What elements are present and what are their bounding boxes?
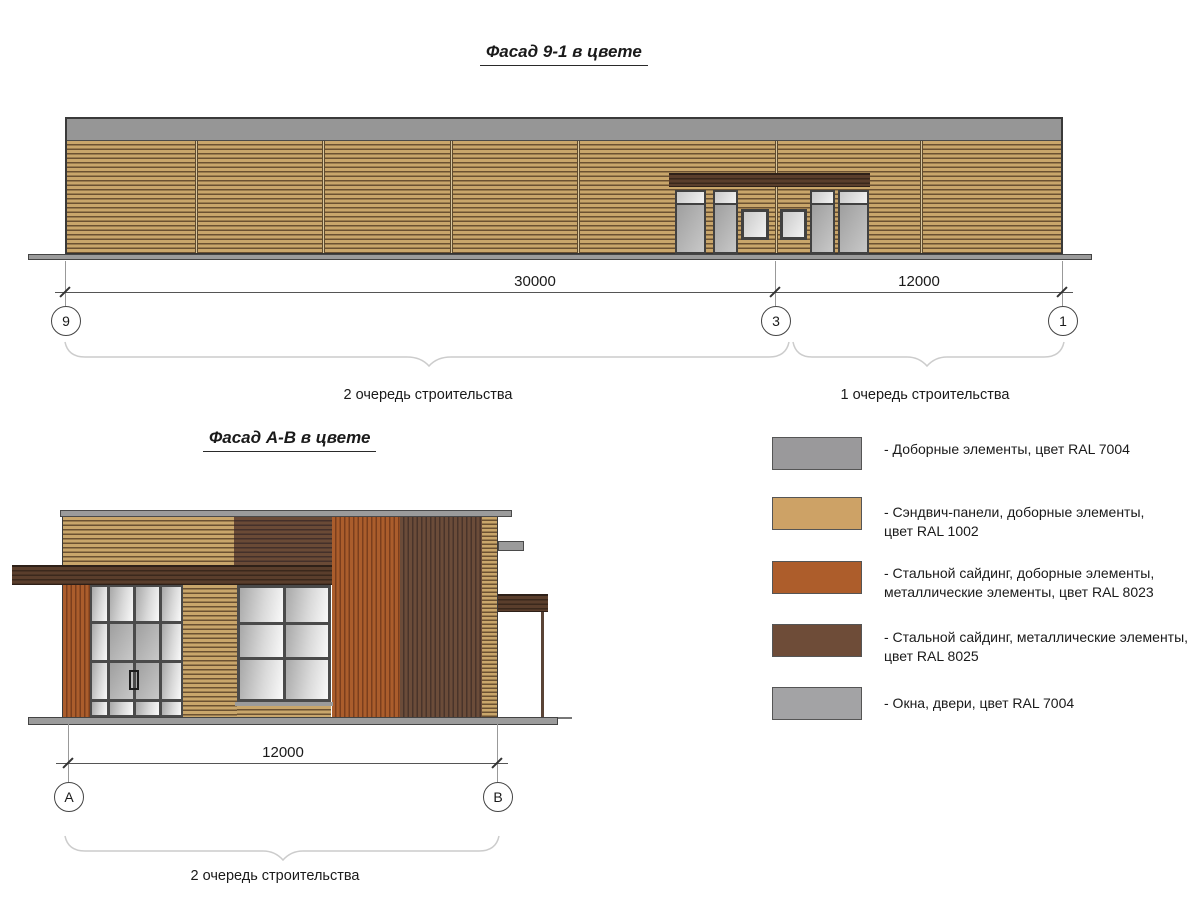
extension-line-axis-9 (65, 261, 66, 306)
window-pane (92, 702, 107, 715)
ground-strip (28, 717, 558, 725)
panel-joint (195, 141, 198, 253)
tan-siding-band (62, 517, 234, 565)
sidelight-glass (812, 205, 833, 252)
legend-label-windows: - Окна, двери, цвет RAL 7004 (884, 694, 1200, 713)
phase-label-1: 1 очередь строительства (815, 387, 1035, 403)
parapet-cap (60, 510, 512, 517)
entrance-canopy (669, 173, 870, 187)
dimension-line (55, 292, 1073, 293)
drawing-sheet: Фасад 9-1 в цвете (0, 0, 1200, 900)
window-pane (136, 702, 159, 715)
sidelight-transom (812, 192, 833, 203)
porch-canopy (498, 594, 548, 612)
legend-label-ral1002: - Сэндвич-панели, доборные элементы, цве… (884, 503, 1200, 540)
phase-brace (0, 828, 600, 872)
curtain-wall (90, 585, 183, 717)
door-transom (677, 192, 704, 203)
ground-strip (28, 254, 1092, 260)
facade-a-b-title: Фасад А-В в цвете (203, 428, 376, 452)
entrance-door-right (838, 190, 869, 254)
wood-siding-wall (67, 141, 1061, 253)
window-pane (240, 660, 283, 699)
window-glass (744, 212, 766, 237)
window-pane (286, 625, 329, 657)
entrance-door-left (675, 190, 706, 254)
parapet-band (67, 119, 1061, 141)
axis-circle-9: 9 (51, 306, 81, 336)
phase-label: 2 очередь строительства (165, 868, 385, 884)
axis-circle-b: В (483, 782, 513, 812)
window-pane (136, 587, 159, 621)
siding-under-window (237, 706, 331, 717)
window-pane (162, 624, 181, 660)
dark-brown-vertical-siding (400, 517, 482, 717)
door-pane (110, 624, 133, 660)
roof-beam (498, 541, 524, 551)
dimension-line (56, 763, 508, 764)
door-handle (129, 670, 139, 690)
window-pane (240, 588, 283, 622)
facade-9-1-title: Фасад 9-1 в цвете (480, 42, 648, 66)
dimension-value-12000: 12000 (243, 744, 323, 761)
window-pane (286, 660, 329, 699)
legend-swatch-ral8023 (772, 561, 862, 594)
phase-braces (0, 336, 1200, 380)
axis-circle-1: 1 (1048, 306, 1078, 336)
entrance-window-right (780, 209, 807, 240)
legend-label-ral7004: - Доборные элементы, цвет RAL 7004 (884, 440, 1200, 459)
door-pane (136, 624, 159, 660)
porch-post (541, 612, 544, 717)
window-pane (162, 702, 181, 715)
facade-a-b-drawing (12, 510, 572, 732)
window-pane (110, 587, 133, 621)
dimension-value-12000: 12000 (879, 273, 959, 290)
door-leaf (677, 205, 704, 252)
panel-joint (450, 141, 453, 253)
legend-label-ral8025: - Стальной сайдинг, металлические элемен… (884, 628, 1200, 665)
extension-line-axis-1 (1062, 261, 1063, 306)
panel-joint (920, 141, 923, 253)
entrance-sidelight-right (810, 190, 835, 254)
sidelight-glass (715, 205, 736, 252)
tan-corner-strip (482, 517, 498, 717)
door-leaf (840, 205, 867, 252)
dimension-value-30000: 30000 (495, 273, 575, 290)
legend-swatch-ral1002 (772, 497, 862, 530)
phase-label-2: 2 очередь строительства (318, 387, 538, 403)
extension-line-axis-b (497, 723, 498, 782)
panel-joint (577, 141, 580, 253)
extension-line-axis-3 (775, 261, 776, 306)
large-window (237, 585, 331, 702)
window-pane (110, 702, 133, 715)
tan-siding-pier (183, 585, 237, 717)
extension-line-axis-a (68, 723, 69, 782)
window-pane (162, 587, 181, 621)
legend-swatch-ral8025 (772, 624, 862, 657)
orange-siding-section (332, 517, 400, 717)
window-glass (783, 212, 804, 237)
orange-corner-column (62, 585, 90, 717)
window-pane (240, 625, 283, 657)
panel-joint (775, 141, 778, 253)
window-pane (162, 663, 181, 699)
window-pane (92, 624, 107, 660)
legend-label-ral8023: - Стальной сайдинг, доборные элементы, м… (884, 564, 1200, 601)
door-pane (136, 663, 159, 699)
window-pane (92, 663, 107, 699)
legend-swatch-ral7004 (772, 437, 862, 470)
entrance-sidelight-left (713, 190, 738, 254)
sidelight-transom (715, 192, 736, 203)
ground-line-extension (558, 717, 572, 719)
door-transom (840, 192, 867, 203)
axis-circle-3: 3 (761, 306, 791, 336)
axis-circle-a: А (54, 782, 84, 812)
facade-9-1-drawing (65, 117, 1063, 255)
entrance-canopy (12, 565, 332, 585)
panel-joint (322, 141, 325, 253)
window-pane (286, 588, 329, 622)
legend-swatch-windows (772, 687, 862, 720)
entrance-window-left (741, 209, 769, 240)
window-pane (92, 587, 107, 621)
